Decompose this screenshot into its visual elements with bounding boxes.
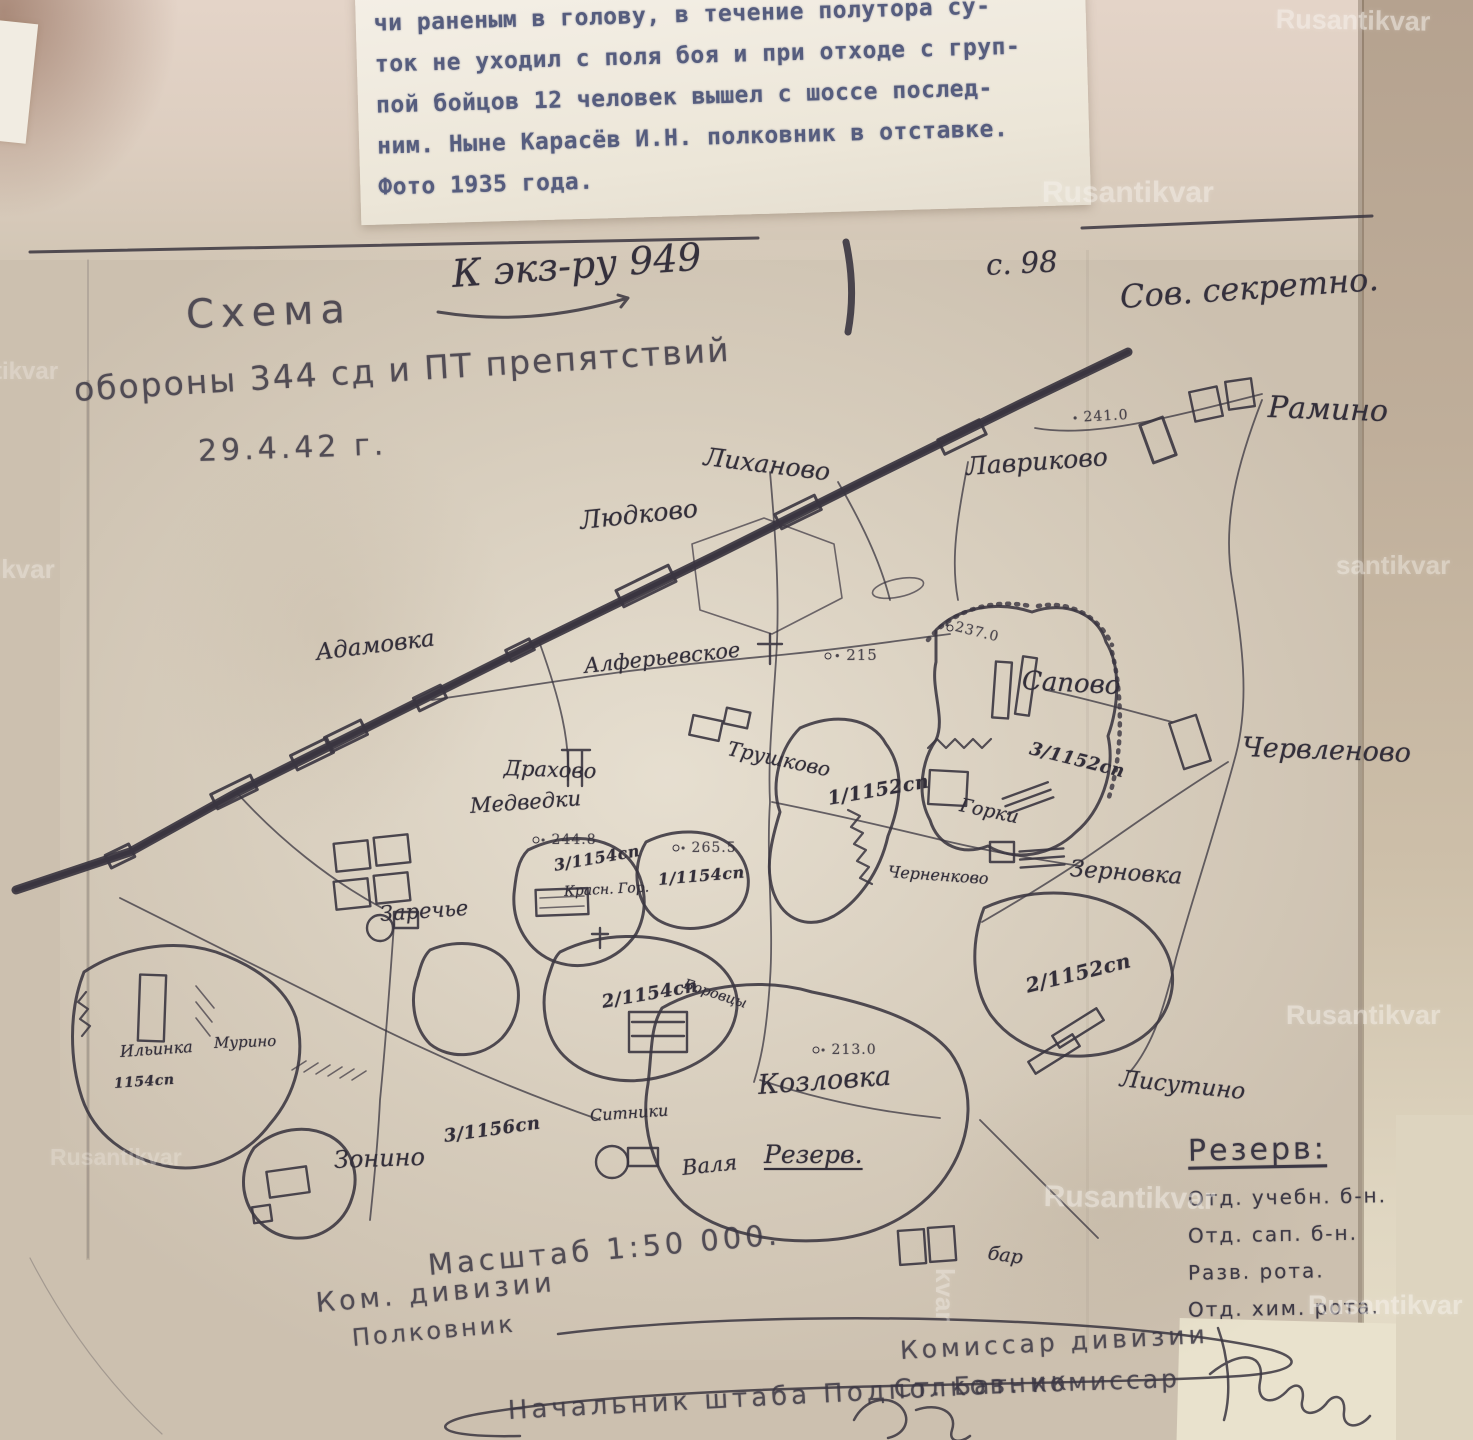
place-label: Ситники	[589, 1101, 669, 1125]
map-scale: Масштаб 1:50 000.	[427, 1217, 783, 1282]
place-label: Горки	[958, 794, 1021, 828]
elevation-label: 213.0	[820, 1042, 877, 1058]
place-label: Алферьевское	[583, 638, 742, 678]
watermark: ikvar	[0, 554, 55, 585]
fold-crease	[86, 380, 90, 1260]
place-label: Мурино	[214, 1032, 277, 1052]
place-label: Лисутино	[1119, 1066, 1247, 1105]
place-label: Красн. Гор.	[564, 880, 650, 900]
reserve-item: Разв. рота.	[1188, 1251, 1388, 1291]
unit-label: 3/1156сп	[443, 1113, 542, 1147]
copy-number-note: К экз-ру 949	[450, 235, 702, 296]
defense-regions	[73, 518, 1173, 1241]
commissar-role: Комиссар дивизии	[899, 1320, 1209, 1365]
map-sheet-highlight	[60, 240, 1380, 1360]
reserve-item: Отд. сап. б-н.	[1188, 1214, 1388, 1254]
place-label: Зонино	[334, 1143, 426, 1174]
place-label: Медведки	[469, 786, 582, 818]
typed-caption-card: чи раненым в голову, в течение полутора …	[355, 0, 1091, 225]
place-label: Ильинка	[119, 1037, 193, 1061]
place-label: Боровцы	[682, 976, 749, 1011]
place-label: бар	[986, 1242, 1024, 1269]
header-rule-right	[1082, 216, 1372, 228]
place-label: Черненково	[887, 862, 989, 888]
watermark: Rusantikvar	[50, 1144, 182, 1171]
unit-label: 1/1154сп	[657, 862, 745, 889]
place-label: Адамовка	[314, 626, 436, 666]
mat-corner	[1176, 1318, 1473, 1440]
map-title-line1: Схема	[185, 286, 352, 338]
watermark: Rusantikvar	[1275, 4, 1430, 38]
place-label: Трушково	[726, 736, 833, 781]
unit-label: 1154сп	[113, 1072, 175, 1092]
place-label: Рамино	[1267, 390, 1388, 429]
place-label: Червленово	[1241, 732, 1411, 769]
elevation-label: 241.0	[1072, 407, 1129, 426]
fortification-marks	[78, 574, 1120, 1080]
reserve-header: Резерв:	[1188, 1130, 1388, 1168]
place-label: Козловка	[757, 1061, 892, 1101]
copy-note-underline	[438, 295, 628, 317]
paper-sliver	[0, 20, 38, 144]
elevation-label: 215	[834, 646, 878, 664]
caption-text: чи раненым в голову, в течение полутора …	[373, 0, 1072, 209]
reserve-block: Резерв: Отд. учебн. б-н.Отд. сап. б-н.Ра…	[1188, 1132, 1387, 1327]
place-label: Сапово	[1021, 666, 1121, 701]
place-label: Резерв.	[764, 1140, 863, 1169]
ink-stroke	[846, 242, 852, 332]
place-label: Драхово	[504, 756, 597, 783]
place-label: Лавриково	[965, 442, 1109, 481]
reserve-items: Отд. учебн. б-н.Отд. сап. б-н.Разв. рота…	[1188, 1179, 1387, 1327]
map-title-line2: обороны 344 сд и ПТ препятствий	[73, 330, 732, 409]
map-title-date: 29.4.42 г.	[197, 427, 387, 469]
paper-blotch	[150, 420, 510, 840]
elevation-label: 265.5	[680, 840, 737, 856]
place-label: Лиханово	[702, 442, 832, 486]
page-number-note: с. 98	[985, 244, 1058, 282]
elevation-label: 244.8	[540, 832, 597, 848]
reserve-item: Отд. хим. рота.	[1188, 1288, 1388, 1328]
elevation-label: 237.0	[942, 616, 1001, 645]
watermark: Rusantikvar	[1286, 1000, 1441, 1031]
place-label: Заречье	[379, 896, 469, 926]
chief-of-staff-line: Начальник штаба Подполковник	[507, 1367, 1071, 1426]
place-label: Зерновка	[1069, 856, 1183, 890]
commander-rank: Полковник	[351, 1310, 517, 1352]
archival-map-photo: чи раненым в голову, в течение полутора …	[0, 0, 1473, 1440]
watermark: kvar	[929, 1268, 960, 1322]
watermark: santikvar	[1336, 550, 1450, 581]
railway-stations	[105, 417, 1176, 868]
mat-side	[1396, 1115, 1473, 1440]
place-label: Людково	[578, 494, 699, 535]
watermark: tikvar	[0, 358, 58, 386]
unit-label: 3/1152сп	[1027, 738, 1126, 782]
unit-label: 1/1152сп	[826, 770, 931, 809]
secrecy-stamp: Сов. секретно.	[1119, 260, 1380, 316]
reserve-item: Отд. учебн. б-н.	[1188, 1177, 1388, 1217]
place-label: Валя	[681, 1150, 738, 1180]
unit-label: 2/1152сп	[1023, 948, 1133, 997]
photo-corner-shadow	[0, 0, 180, 220]
sheet-corner-curl	[30, 1258, 162, 1434]
